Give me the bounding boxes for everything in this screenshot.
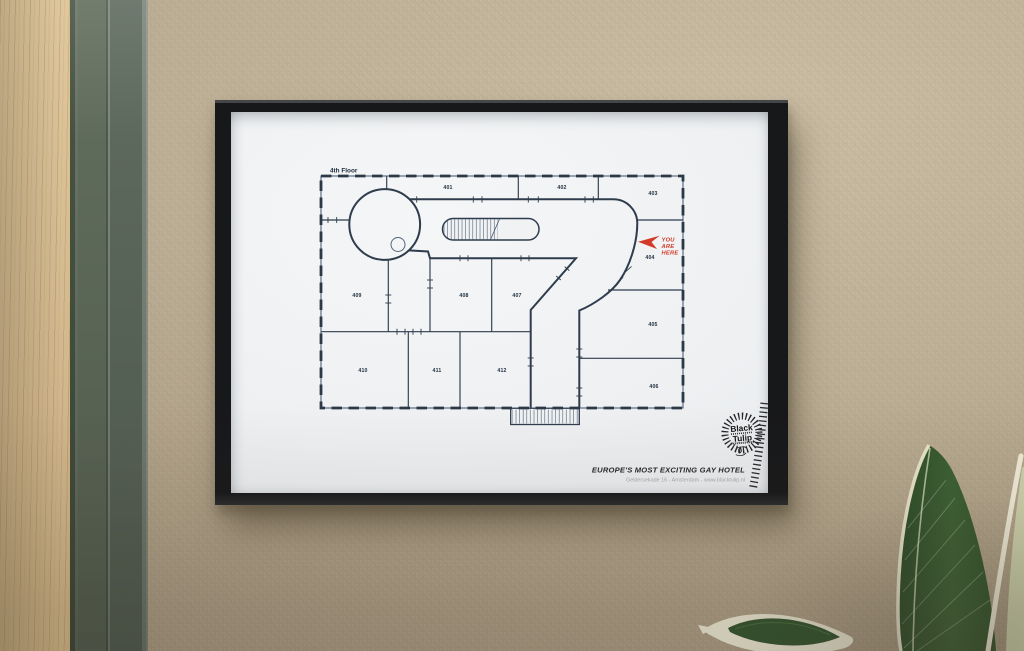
wall-vignette	[0, 0, 1024, 651]
scene: 4th Floor	[0, 0, 1024, 651]
